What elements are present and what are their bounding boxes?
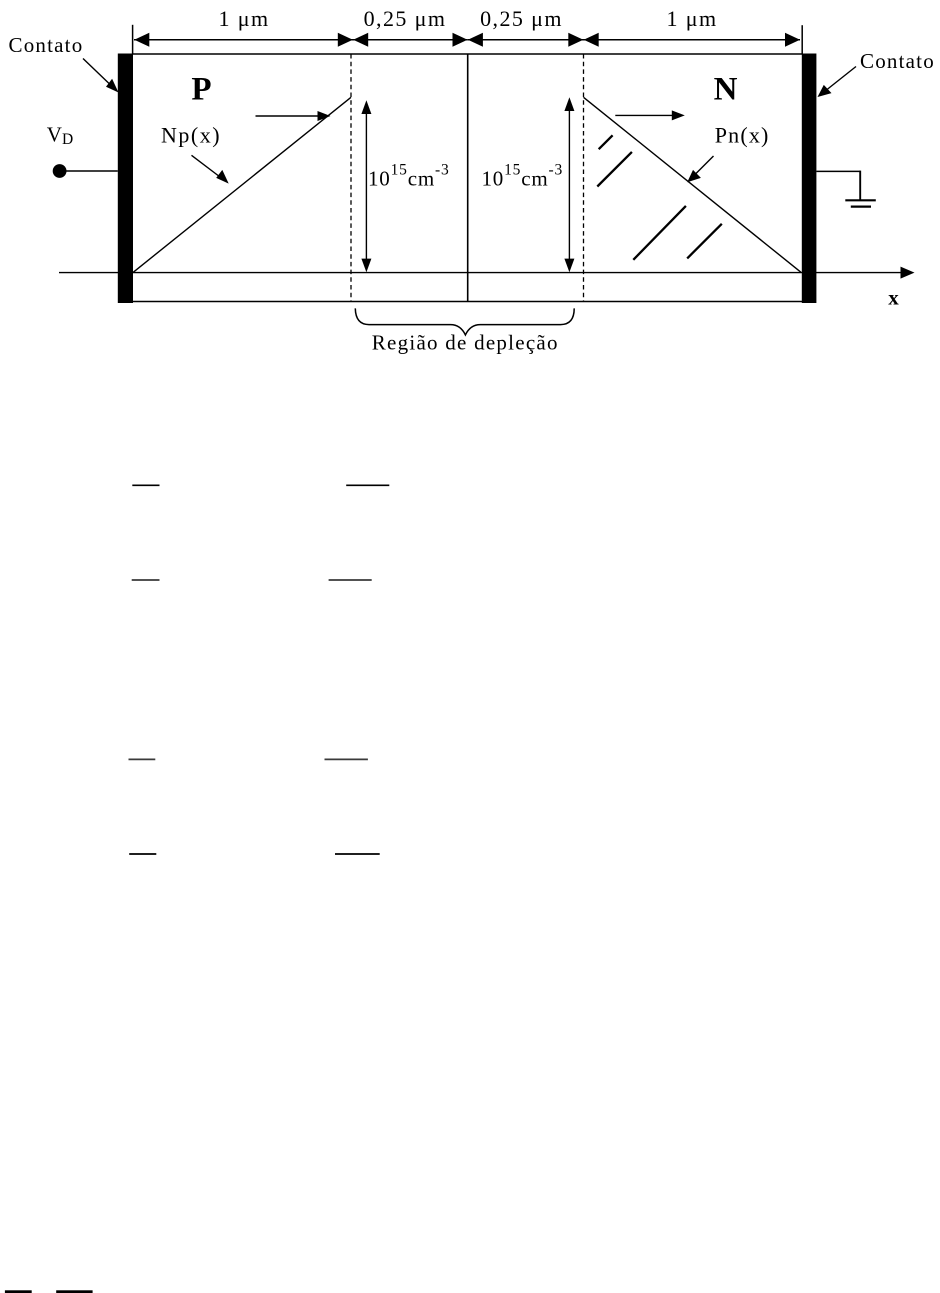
svg-text:Np(x): Np(x) — [161, 122, 221, 147]
svg-text:1 μm: 1 μm — [218, 6, 269, 31]
svg-text:N: N — [714, 71, 738, 107]
svg-text:0,25 μm: 0,25 μm — [480, 6, 563, 31]
svg-text:P: P — [191, 71, 211, 107]
svg-text:1 μm: 1 μm — [666, 6, 717, 31]
svg-text:0,25 μm: 0,25 μm — [364, 6, 447, 31]
svg-text:x: x — [888, 286, 899, 310]
svg-text:Contato: Contato — [860, 49, 935, 73]
svg-text:Contato: Contato — [9, 33, 84, 57]
svg-text:Região de depleção: Região de depleção — [372, 331, 559, 355]
svg-text:Pn(x): Pn(x) — [715, 122, 770, 147]
